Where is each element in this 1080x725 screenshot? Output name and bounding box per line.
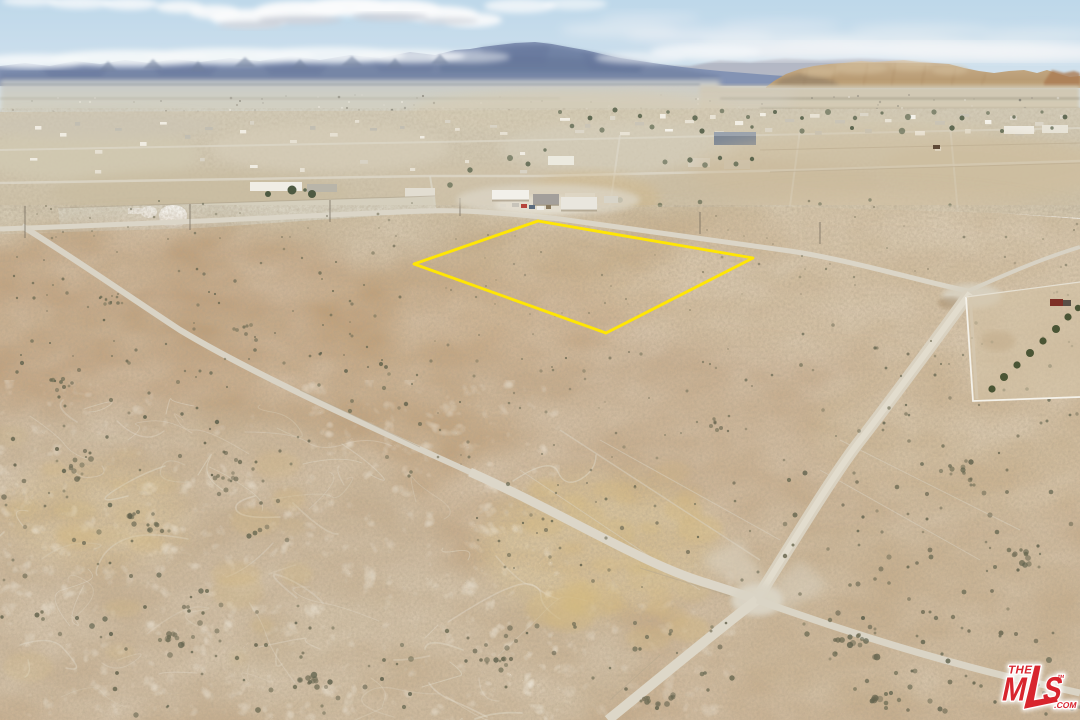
svg-text:.COM: .COM — [1053, 700, 1077, 710]
svg-text:TM: TM — [1057, 674, 1065, 679]
